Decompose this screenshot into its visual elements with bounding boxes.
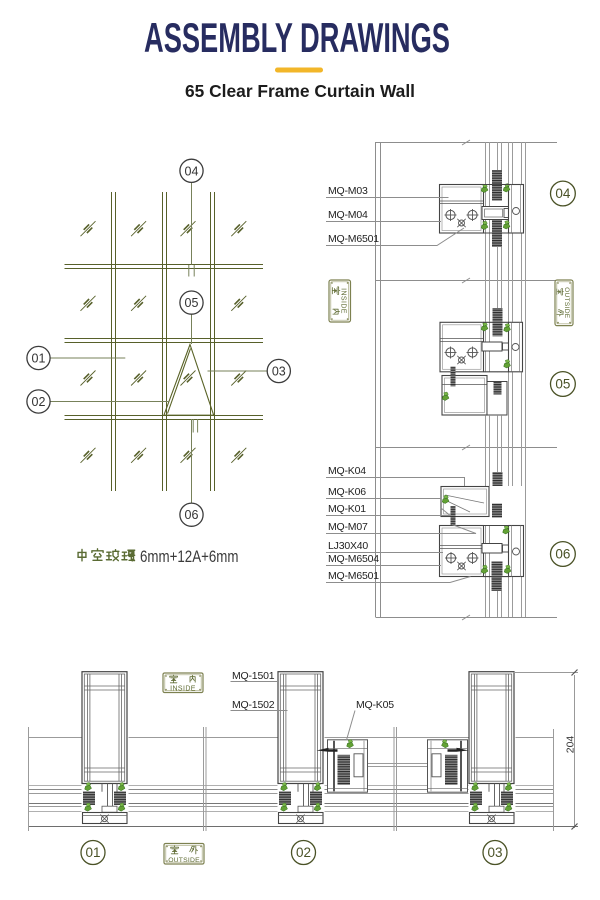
svg-text:04: 04 xyxy=(555,186,571,201)
svg-text:MQ-K04: MQ-K04 xyxy=(328,465,366,477)
svg-text:03: 03 xyxy=(487,845,502,860)
svg-text:MQ-M07: MQ-M07 xyxy=(328,521,368,533)
svg-text:02: 02 xyxy=(32,395,46,409)
svg-text:04: 04 xyxy=(185,164,199,178)
svg-text:MQ-M03: MQ-M03 xyxy=(328,185,368,197)
svg-text:MQ-K01: MQ-K01 xyxy=(328,503,366,515)
svg-text:01: 01 xyxy=(32,352,46,366)
svg-text:6mm+12A+6mm: 6mm+12A+6mm xyxy=(140,548,239,566)
svg-text:MQ-M04: MQ-M04 xyxy=(328,209,368,221)
svg-text:MQ-K05: MQ-K05 xyxy=(356,699,394,711)
svg-text:INSIDE: INSIDE xyxy=(339,288,346,314)
svg-text:05: 05 xyxy=(555,377,570,392)
svg-text:MQ-M6504: MQ-M6504 xyxy=(328,553,379,565)
svg-text:MQ-1501: MQ-1501 xyxy=(232,670,275,682)
svg-text:204: 204 xyxy=(565,736,577,754)
svg-text:ASSEMBLY DRAWINGS: ASSEMBLY DRAWINGS xyxy=(144,14,450,61)
svg-text:OUTSIDE: OUTSIDE xyxy=(563,287,570,319)
svg-text:06: 06 xyxy=(555,547,570,562)
svg-text:INSIDE: INSIDE xyxy=(170,686,196,693)
svg-text:MQ-M6501: MQ-M6501 xyxy=(328,233,379,245)
svg-text:01: 01 xyxy=(85,845,100,860)
svg-text:03: 03 xyxy=(272,365,286,379)
svg-text:OUTSIDE: OUTSIDE xyxy=(168,857,200,864)
svg-text:MQ-K06: MQ-K06 xyxy=(328,486,366,498)
svg-text:65 Clear Frame Curtain Wall: 65 Clear Frame Curtain Wall xyxy=(185,81,415,101)
svg-text:MQ-1502: MQ-1502 xyxy=(232,699,275,711)
svg-text:MQ-M6501: MQ-M6501 xyxy=(328,570,379,582)
svg-text:06: 06 xyxy=(185,508,199,522)
svg-text:LJ30X40: LJ30X40 xyxy=(328,540,368,552)
svg-text:05: 05 xyxy=(185,296,199,310)
svg-text:02: 02 xyxy=(296,845,311,860)
